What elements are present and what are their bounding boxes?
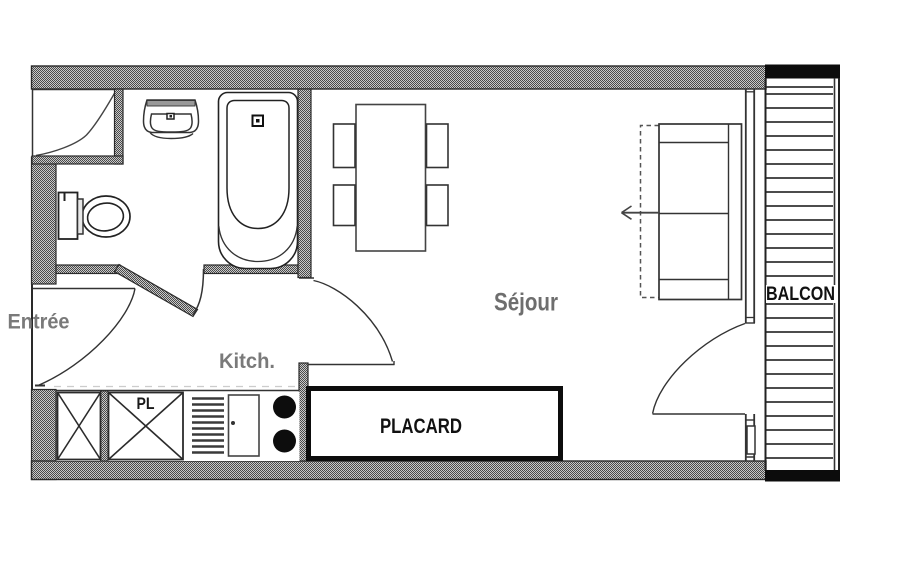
svg-text:Séjour: Séjour <box>494 289 558 317</box>
svg-text:PL: PL <box>137 395 155 413</box>
svg-text:Entrée: Entrée <box>8 311 70 334</box>
svg-text:PLACARD: PLACARD <box>380 414 462 438</box>
svg-text:Kitch.: Kitch. <box>219 349 275 373</box>
svg-text:BALCON: BALCON <box>766 284 835 305</box>
